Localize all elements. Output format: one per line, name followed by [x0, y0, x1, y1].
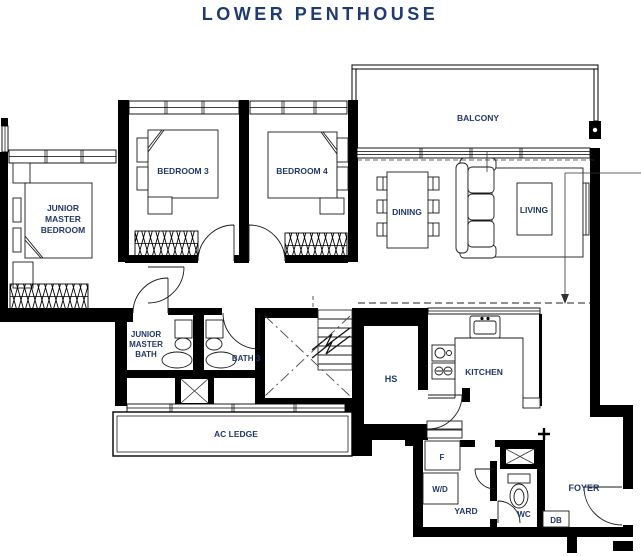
wall-segment — [255, 308, 318, 318]
wall-segment — [490, 519, 497, 527]
wall-segment — [539, 314, 542, 406]
page-title: LOWER PENTHOUSE — [202, 4, 439, 24]
floor-plan: LOWER PENTHOUSE JUNIOR MASTER BEDROOM BE… — [0, 0, 641, 556]
wardrobe — [135, 231, 198, 256]
staircase — [312, 310, 352, 370]
wall-segment — [413, 440, 423, 530]
wall-segment — [193, 308, 204, 372]
label-junior-master-bedroom: BEDROOM — [41, 225, 85, 235]
column-marker — [593, 128, 597, 132]
door-junior-master-bath — [133, 278, 168, 313]
sliding-door-band — [357, 148, 590, 158]
wall-segment — [567, 537, 577, 553]
section-arrow — [561, 173, 641, 304]
wall-segment — [623, 417, 633, 489]
service-shaft — [500, 444, 540, 469]
label-bedroom4: BEDROOM 4 — [276, 166, 328, 176]
label-db: DB — [550, 516, 562, 525]
window-band — [129, 101, 239, 114]
yard-counter — [427, 421, 462, 438]
hob — [432, 345, 455, 379]
label-junior-master-bedroom: JUNIOR — [47, 203, 79, 213]
label-balcony: BALCONY — [457, 113, 499, 123]
toilet — [206, 320, 223, 350]
toilet — [175, 320, 192, 350]
basin — [162, 352, 192, 368]
wall-segment — [462, 388, 470, 402]
wall-segment — [460, 440, 475, 447]
door-bedroom4 — [249, 225, 285, 261]
tv-console — [583, 183, 589, 235]
window-band — [2, 126, 8, 152]
wall-segment — [590, 405, 633, 417]
label-junior-master-bath: MASTER — [129, 340, 163, 349]
household-shelter-door-gap — [417, 390, 428, 424]
label-living: LIVING — [520, 205, 549, 215]
label-foyer: FOYER — [568, 483, 600, 493]
label-junior-master-bedroom: MASTER — [45, 214, 81, 224]
window-band — [250, 101, 347, 114]
toilet — [508, 474, 530, 508]
door-bath3 — [223, 313, 259, 349]
wall-segment — [115, 322, 127, 406]
label-fridge: F — [440, 453, 445, 462]
kitchen-window-band — [428, 308, 540, 314]
wall-segment — [413, 527, 633, 537]
door-bedroom3 — [198, 225, 234, 261]
wall-segment — [118, 100, 129, 262]
floor-plan-page: LOWER PENTHOUSE JUNIOR MASTER BEDROOM BE… — [0, 0, 641, 556]
door-junior-suite — [148, 267, 184, 303]
label-bedroom3: BEDROOM 3 — [157, 166, 209, 176]
wall-segment — [490, 461, 497, 501]
wall-segment — [0, 308, 133, 322]
wall-segment — [0, 152, 8, 322]
label-kitchen: KITCHEN — [465, 367, 503, 377]
sofa — [456, 158, 496, 258]
wall-segment — [590, 148, 600, 405]
label-dining: DINING — [392, 207, 422, 217]
window-band — [127, 404, 345, 412]
label-yard: YARD — [454, 506, 477, 516]
wall-segment — [239, 100, 249, 263]
wall-segment — [613, 541, 633, 551]
wardrobe — [10, 284, 88, 309]
window-band — [9, 150, 116, 163]
label-junior-master-bath: BATH — [135, 350, 157, 359]
label-hs: HS — [385, 374, 398, 384]
label-ac-ledge: AC LEDGE — [214, 429, 258, 439]
label-junior-master-bath: JUNIOR — [131, 330, 161, 339]
label-wc: WC — [517, 510, 531, 519]
wall-segment — [234, 255, 239, 263]
wall-segment — [348, 100, 358, 262]
kitchen-sink — [470, 316, 500, 338]
label-washer-dryer: W/D — [432, 485, 448, 494]
wall-segment — [1, 118, 8, 126]
label-bath3: BATH 3 — [232, 354, 261, 363]
wardrobe — [285, 233, 347, 258]
